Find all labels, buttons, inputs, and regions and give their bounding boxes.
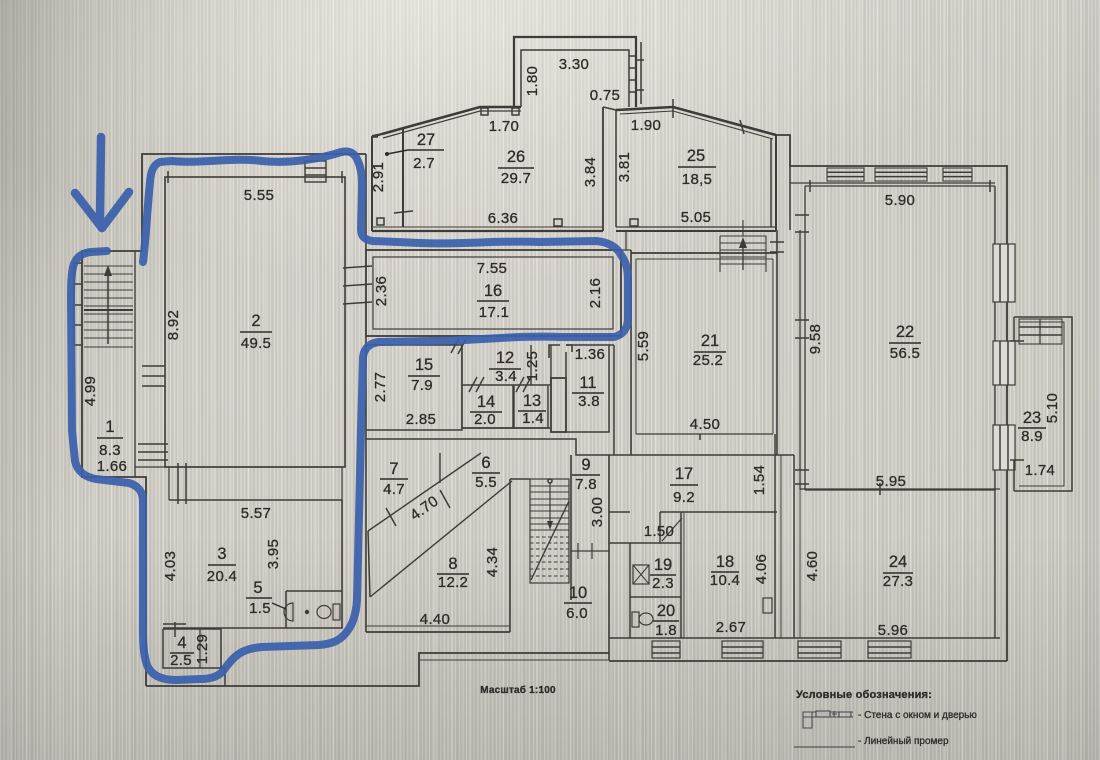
svg-text:3.84: 3.84 — [582, 157, 599, 187]
svg-text:3.8: 3.8 — [578, 393, 600, 410]
svg-text:- Линейный промер: - Линейный промер — [858, 736, 949, 747]
svg-text:5.95: 5.95 — [876, 473, 906, 490]
svg-text:20: 20 — [657, 602, 675, 620]
svg-text:Условные обозначения:: Условные обозначения: — [796, 689, 932, 701]
svg-text:17.1: 17.1 — [479, 304, 509, 321]
svg-text:1.74: 1.74 — [1025, 462, 1055, 479]
svg-text:25.2: 25.2 — [693, 352, 723, 369]
svg-text:21: 21 — [701, 332, 719, 350]
svg-text:2.77: 2.77 — [372, 372, 389, 402]
svg-text:5: 5 — [253, 579, 262, 597]
svg-text:9: 9 — [581, 456, 590, 474]
svg-text:7.9: 7.9 — [411, 377, 433, 394]
svg-text:3.00: 3.00 — [589, 497, 606, 527]
svg-text:3: 3 — [217, 545, 226, 563]
svg-text:3.4: 3.4 — [495, 368, 517, 385]
svg-text:12: 12 — [496, 349, 514, 367]
svg-text:1.50: 1.50 — [644, 523, 674, 540]
svg-text:7.55: 7.55 — [477, 260, 507, 277]
svg-text:11: 11 — [579, 374, 596, 392]
svg-text:1.66: 1.66 — [97, 458, 127, 475]
svg-text:8.92: 8.92 — [165, 310, 182, 340]
svg-text:17: 17 — [675, 465, 693, 483]
svg-text:Масштаб 1:100: Масштаб 1:100 — [480, 684, 556, 696]
svg-text:18: 18 — [716, 553, 734, 571]
svg-text:1.8: 1.8 — [655, 622, 677, 639]
svg-text:2.36: 2.36 — [373, 276, 390, 306]
svg-text:14: 14 — [477, 393, 495, 411]
svg-text:2.16: 2.16 — [587, 278, 604, 308]
svg-text:20.4: 20.4 — [207, 568, 237, 585]
svg-text:4.7: 4.7 — [383, 481, 405, 498]
svg-text:1.80: 1.80 — [524, 66, 541, 96]
svg-text:1.36: 1.36 — [575, 346, 605, 363]
svg-text:6: 6 — [481, 454, 490, 472]
svg-text:24: 24 — [889, 553, 907, 571]
svg-text:2.67: 2.67 — [716, 619, 746, 636]
svg-text:4: 4 — [177, 634, 186, 652]
svg-text:18,5: 18,5 — [682, 171, 712, 188]
svg-text:2.7: 2.7 — [413, 155, 435, 172]
svg-text:19: 19 — [654, 556, 672, 574]
svg-text:4.70: 4.70 — [407, 493, 442, 524]
svg-text:5.57: 5.57 — [241, 505, 271, 522]
svg-text:8.9: 8.9 — [1021, 428, 1043, 445]
svg-text:13: 13 — [523, 392, 541, 410]
svg-text:5.05: 5.05 — [681, 209, 711, 226]
svg-text:1.5: 1.5 — [249, 600, 271, 617]
svg-text:7: 7 — [389, 460, 398, 478]
svg-text:5.5: 5.5 — [475, 474, 497, 491]
svg-text:- Стена с окном и дверью: - Стена с окном и дверью — [858, 710, 977, 721]
svg-text:3.30: 3.30 — [559, 56, 589, 73]
svg-text:5.55: 5.55 — [244, 187, 274, 204]
svg-text:7.8: 7.8 — [575, 476, 597, 493]
svg-text:5.90: 5.90 — [885, 192, 915, 209]
svg-text:8.3: 8.3 — [99, 442, 121, 459]
svg-text:6.36: 6.36 — [488, 210, 518, 227]
svg-text:4.99: 4.99 — [82, 376, 99, 406]
svg-text:26: 26 — [507, 148, 525, 166]
svg-text:5.59: 5.59 — [635, 331, 652, 361]
svg-text:1.25: 1.25 — [524, 351, 541, 381]
svg-text:2: 2 — [251, 312, 260, 330]
svg-text:23: 23 — [1023, 409, 1041, 427]
svg-text:10.4: 10.4 — [710, 572, 740, 589]
svg-text:5.10: 5.10 — [1044, 393, 1061, 423]
svg-text:27.3: 27.3 — [883, 573, 913, 590]
svg-text:4.06: 4.06 — [753, 554, 770, 584]
svg-text:29.7: 29.7 — [501, 170, 531, 187]
svg-text:2.91: 2.91 — [370, 162, 387, 192]
svg-text:49.5: 49.5 — [241, 335, 271, 352]
svg-text:4.50: 4.50 — [690, 416, 720, 433]
svg-text:15: 15 — [415, 356, 433, 374]
svg-text:8: 8 — [448, 555, 457, 573]
svg-text:10: 10 — [569, 584, 587, 602]
svg-text:1.4: 1.4 — [522, 410, 544, 427]
svg-text:1.54: 1.54 — [751, 465, 768, 495]
svg-text:1.70: 1.70 — [489, 118, 519, 135]
svg-text:4.03: 4.03 — [162, 551, 179, 581]
svg-text:22: 22 — [896, 323, 914, 341]
svg-text:9.2: 9.2 — [673, 489, 695, 506]
svg-text:9.58: 9.58 — [807, 324, 824, 354]
svg-text:3.81: 3.81 — [616, 152, 633, 182]
svg-text:0.75: 0.75 — [590, 87, 620, 104]
svg-text:2.0: 2.0 — [474, 411, 496, 428]
svg-text:27: 27 — [417, 131, 435, 149]
svg-text:25: 25 — [687, 147, 705, 165]
svg-text:1.29: 1.29 — [194, 634, 211, 664]
svg-text:1: 1 — [105, 418, 114, 436]
svg-text:5.96: 5.96 — [878, 622, 908, 639]
svg-text:1.90: 1.90 — [631, 117, 661, 134]
svg-text:2.5: 2.5 — [170, 652, 192, 669]
svg-text:2.85: 2.85 — [406, 411, 436, 428]
svg-text:16: 16 — [484, 282, 502, 300]
svg-text:56.5: 56.5 — [890, 345, 920, 362]
svg-text:2.3: 2.3 — [652, 575, 674, 592]
svg-text:4.34: 4.34 — [484, 547, 501, 577]
svg-text:3.95: 3.95 — [265, 539, 282, 569]
svg-text:6.0: 6.0 — [566, 605, 588, 622]
svg-text:12.2: 12.2 — [438, 574, 468, 591]
svg-text:4.40: 4.40 — [420, 611, 450, 628]
svg-text:4.60: 4.60 — [804, 551, 821, 581]
